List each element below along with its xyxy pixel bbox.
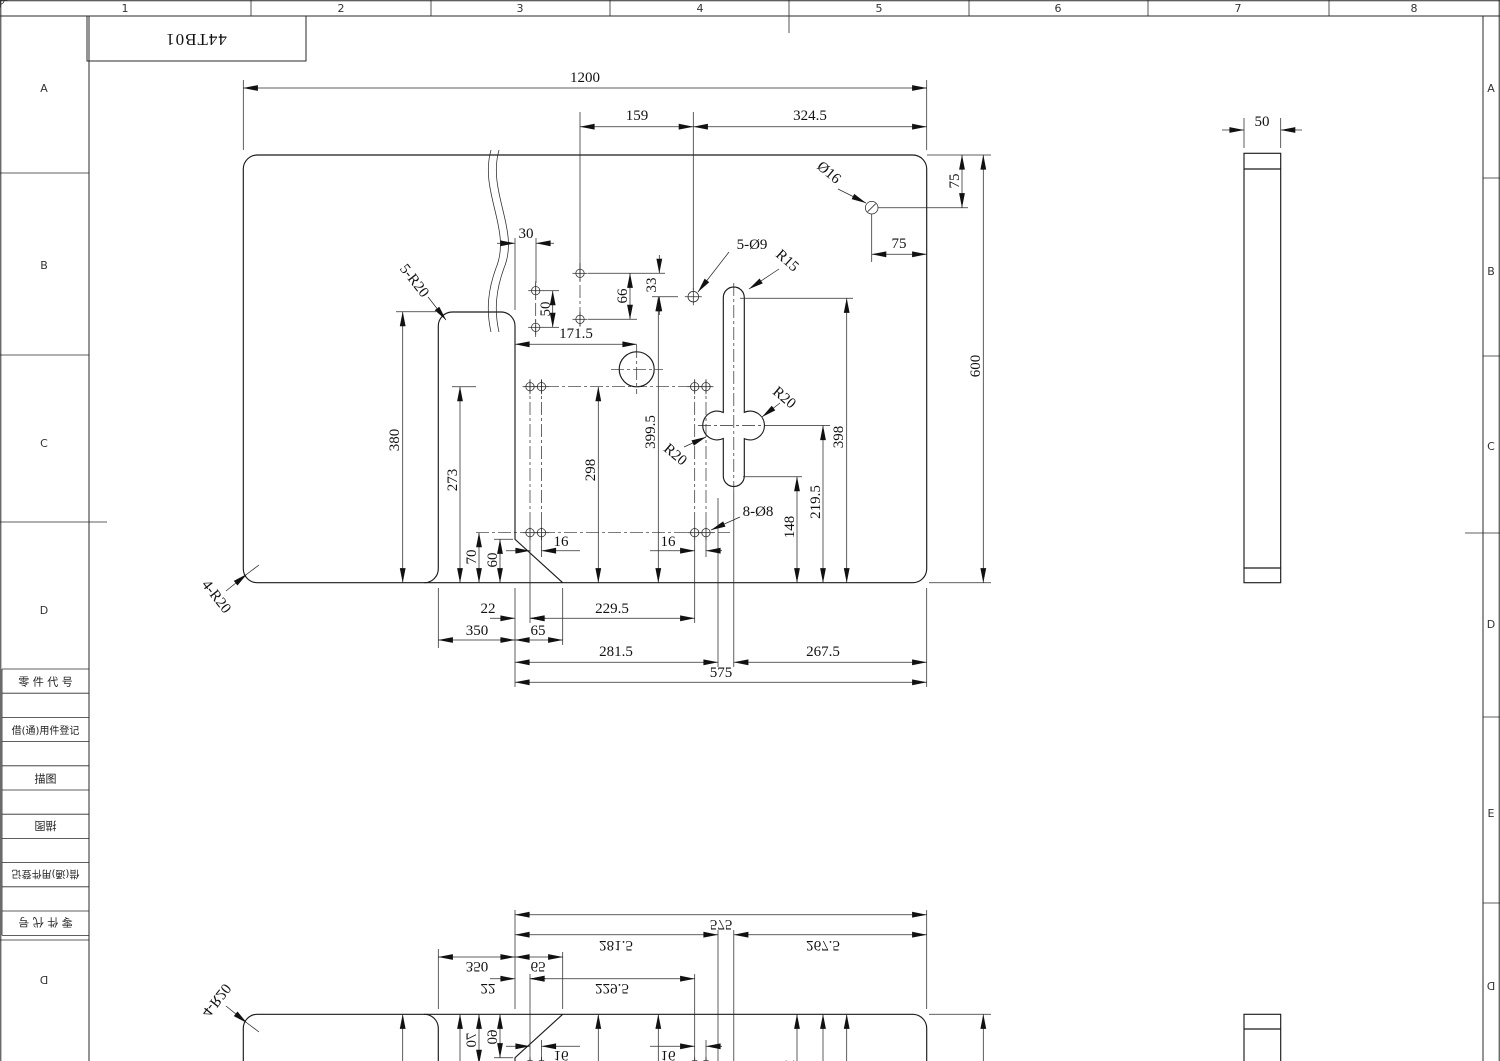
extension-lines — [243, 80, 991, 687]
main-drawing: 1200 159 324.5 75 75 Ø16 600 30 5-Ø9 R15… — [0, 0, 1302, 687]
dim-324-5: 324.5 — [793, 108, 827, 124]
dim-16-right: 16 — [661, 534, 677, 550]
dim-75-horizontal: 75 — [892, 236, 907, 252]
margin-label-tracing-flipped: 描图 — [35, 819, 57, 833]
dim-5-r20: 5-R20 — [396, 261, 432, 300]
zone-row-left-a: A — [40, 82, 48, 95]
dim-4-r20: 4-R20 — [198, 577, 234, 616]
dim-148: 148 — [782, 516, 798, 539]
hole-dia16 — [865, 201, 878, 214]
dim-70: 70 — [464, 550, 480, 565]
dim-399-5: 399.5 — [643, 415, 659, 449]
zone-col-6: 6 — [1055, 2, 1062, 15]
margin-label-tracing: 描图 — [35, 771, 57, 785]
centerlines — [476, 263, 768, 545]
dim-171-5: 171.5 — [559, 326, 593, 342]
boss-outline — [424, 312, 562, 583]
zone-row-right-e: E — [1488, 807, 1495, 820]
dim-r15: R15 — [772, 247, 801, 276]
margin-label-borrowed-reg: 借(通)用件登记 — [12, 724, 80, 737]
zone-col-2: 2 — [338, 2, 345, 15]
dim-229-5: 229.5 — [595, 601, 629, 617]
title-block-code: 44TB01 — [165, 30, 227, 49]
drawing-sheet: 1 2 3 4 5 6 7 8 A B C D D A B C D E D 44… — [0, 0, 1500, 1061]
title-block: 44TB01 — [87, 16, 306, 61]
dim-16-left: 16 — [554, 534, 570, 550]
holes — [0, 0, 878, 540]
dim-30: 30 — [519, 226, 534, 242]
plate-outline — [243, 155, 926, 583]
dim-575: 575 — [710, 665, 733, 681]
zone-row-left-d2: D — [40, 973, 48, 986]
zone-row-right-d: D — [1487, 618, 1495, 631]
dimension-lines — [243, 88, 983, 682]
dim-8-dia8: 8-Ø8 — [743, 504, 774, 520]
dim-side-50: 50 — [1255, 114, 1270, 130]
zone-row-right-c: C — [1487, 440, 1495, 453]
dim-219-5: 219.5 — [808, 485, 824, 519]
dim-273: 273 — [445, 469, 461, 492]
margin-label-part-code-flipped: 零 件 代 号 — [18, 916, 73, 929]
dim-380: 380 — [387, 429, 403, 452]
dim-dia16: Ø16 — [814, 159, 844, 188]
zone-col-8: 8 — [1411, 2, 1418, 15]
margin-label-part-code: 零 件 代 号 — [18, 676, 73, 689]
side-view — [1222, 118, 1302, 583]
dim-75-vertical: 75 — [947, 174, 963, 189]
dim-159: 159 — [626, 108, 649, 124]
zone-row-right-d2: D — [1487, 979, 1495, 992]
zone-row-left-d: D — [40, 604, 48, 617]
dim-22: 22 — [481, 601, 496, 617]
dim-281-5: 281.5 — [599, 644, 633, 660]
zone-row-right-b: B — [1487, 265, 1495, 278]
zone-col-1: 1 — [122, 2, 129, 15]
dim-50: 50 — [538, 302, 554, 317]
zone-col-3: 3 — [517, 2, 524, 15]
zone-labels: 1 2 3 4 5 6 7 8 A B C D D A B C D E D — [40, 2, 1495, 992]
dim-298: 298 — [583, 459, 599, 482]
mirrored-drawing — [0, 910, 1302, 1061]
dim-267-5: 267.5 — [806, 644, 840, 660]
dim-33: 33 — [644, 278, 660, 293]
zone-col-5: 5 — [876, 2, 883, 15]
dim-r20-left: R20 — [660, 441, 689, 469]
dim-398: 398 — [831, 426, 847, 449]
margin-label-borrowed-reg-flipped: 借(通)用件登记 — [12, 867, 80, 880]
margin-label-strip: 零 件 代 号 借(通)用件登记 描图 描图 借(通)用件登记 零 件 代 号 — [2, 669, 89, 935]
zone-row-left-c: C — [40, 437, 48, 450]
dim-65: 65 — [531, 623, 546, 639]
dim-60: 60 — [485, 553, 501, 568]
break-lines — [488, 150, 508, 332]
dim-5-dia9: 5-Ø9 — [737, 237, 768, 253]
dim-350: 350 — [466, 623, 489, 639]
dim-600: 600 — [968, 355, 984, 378]
zone-row-right-a: A — [1487, 82, 1495, 95]
sheet-frame: 1 2 3 4 5 6 7 8 A B C D D A B C D E D 44… — [0, 0, 1500, 1061]
zone-col-4: 4 — [697, 2, 704, 15]
leader-lines — [226, 189, 866, 591]
cad-canvas: 1 2 3 4 5 6 7 8 A B C D D A B C D E D 44… — [0, 0, 1500, 1061]
zone-row-left-b: B — [40, 259, 48, 272]
dim-overall-width: 1200 — [570, 70, 600, 86]
zone-col-7: 7 — [1235, 2, 1242, 15]
dim-66: 66 — [615, 288, 631, 304]
